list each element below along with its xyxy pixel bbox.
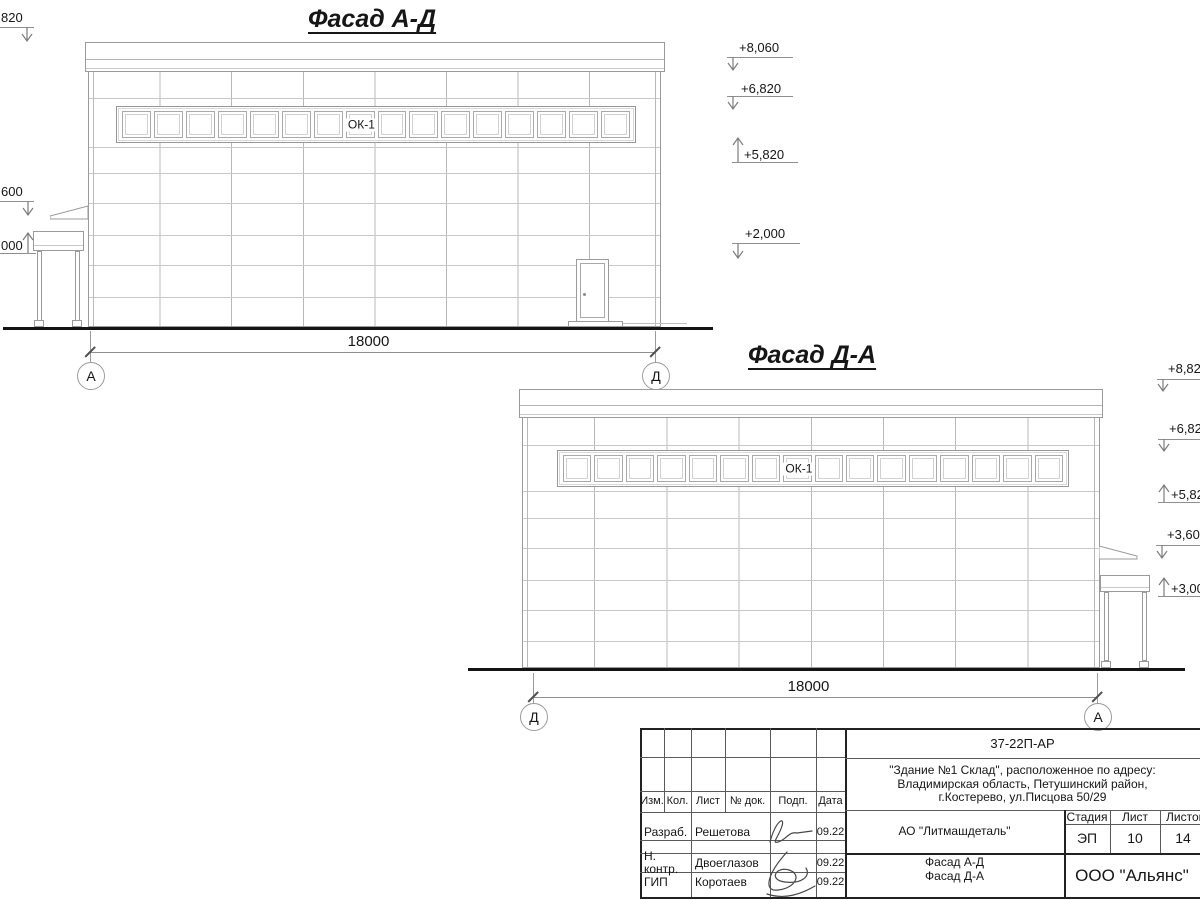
elevation-label: 000 bbox=[1, 239, 23, 253]
window-pane bbox=[626, 455, 654, 482]
window-pane bbox=[154, 111, 183, 138]
signature-icon bbox=[762, 812, 822, 848]
elevation-arrow-up-icon bbox=[732, 137, 744, 163]
elevation-label: +6,82 bbox=[1169, 422, 1200, 436]
window-pane bbox=[473, 111, 502, 138]
window-pane bbox=[505, 111, 534, 138]
ground-line bbox=[468, 668, 1185, 671]
drawing-sheet: Фасад А-Д ОК-1 bbox=[0, 0, 1200, 900]
door bbox=[576, 259, 609, 322]
window-pane bbox=[537, 111, 566, 138]
elevation-arrow-up-icon bbox=[1158, 484, 1170, 503]
window-band-tag: ОК-1 bbox=[782, 462, 815, 475]
window-pane bbox=[594, 455, 622, 482]
elevation-arrow-down-icon bbox=[21, 27, 33, 42]
window-pane bbox=[972, 455, 1000, 482]
client-name: АО "Литмашдеталь" bbox=[845, 810, 1064, 853]
porch-right-foot bbox=[1101, 661, 1111, 668]
company-name: ООО "Альянс" bbox=[1064, 853, 1200, 897]
dimension-line bbox=[533, 697, 1097, 698]
window-pane bbox=[569, 111, 598, 138]
window-pane bbox=[909, 455, 937, 482]
rev-col-data: Дата bbox=[816, 791, 845, 812]
facade-ad-title: Фасад А-Д bbox=[308, 5, 436, 34]
window-pane bbox=[1003, 455, 1031, 482]
facade-ad-parapet bbox=[85, 42, 665, 72]
window-pane bbox=[378, 111, 407, 138]
elevation-label: +5,82 bbox=[1171, 488, 1200, 502]
window-pane bbox=[940, 455, 968, 482]
dimension-value: 18000 bbox=[766, 678, 851, 695]
elevation-label: +6,820 bbox=[741, 82, 781, 96]
project-address: "Здание №1 Склад", расположенное по адре… bbox=[845, 764, 1200, 805]
role-label: Н. контр. bbox=[644, 856, 691, 870]
elevation-label: 820 bbox=[1, 11, 23, 25]
canopy-left bbox=[50, 205, 89, 222]
facade-da-parapet bbox=[519, 389, 1103, 418]
elevation-arrow-down-icon bbox=[1157, 379, 1169, 392]
window-pane bbox=[1035, 455, 1063, 482]
window-pane bbox=[409, 111, 438, 138]
window-band: ОК-1 bbox=[116, 106, 636, 143]
window-pane bbox=[752, 455, 780, 482]
rev-col-doc: № док. bbox=[725, 791, 770, 812]
ground-line bbox=[3, 327, 713, 330]
porch-right-roof bbox=[1100, 575, 1150, 592]
porch-left-roof bbox=[33, 231, 84, 251]
title-block: Изм. Кол. Лист № док. Подп. Дата Разраб.… bbox=[640, 728, 1200, 899]
sheet-label: Лист bbox=[1110, 810, 1160, 824]
rev-col-list: Лист bbox=[691, 791, 725, 812]
window-pane bbox=[122, 111, 151, 138]
sheets-label: Листов bbox=[1166, 810, 1200, 824]
stage-value: ЭП bbox=[1064, 824, 1110, 853]
porch-right-post bbox=[1104, 592, 1109, 661]
elevation-label: +5,820 bbox=[744, 148, 784, 162]
sheet-title: Фасад А-Д Фасад Д-А bbox=[845, 856, 1064, 883]
window-pane bbox=[815, 455, 843, 482]
window-band: ОК-1 bbox=[557, 450, 1069, 487]
elevation-arrow-down-icon bbox=[1156, 545, 1168, 559]
elevation-arrow-down-icon bbox=[727, 96, 739, 110]
porch-left-foot bbox=[72, 320, 82, 327]
role-name: Решетова bbox=[695, 825, 769, 839]
stage-label: Стадия bbox=[1064, 810, 1110, 824]
dimension-line bbox=[90, 352, 655, 353]
elevation-arrow-up-icon bbox=[22, 232, 34, 253]
facade-da-title: Фасад Д-А bbox=[748, 341, 876, 370]
axis-bubble-a: А bbox=[77, 362, 105, 390]
window-pane bbox=[186, 111, 215, 138]
window-pane bbox=[441, 111, 470, 138]
role-label: Разраб. bbox=[644, 825, 691, 839]
porch-left-foot bbox=[34, 320, 44, 327]
sheets-value: 14 bbox=[1160, 824, 1200, 853]
window-pane bbox=[846, 455, 874, 482]
window-pane bbox=[689, 455, 717, 482]
doc-number: 37-22П-АР bbox=[845, 730, 1200, 756]
dimension-value: 18000 bbox=[326, 333, 411, 350]
sheet-value: 10 bbox=[1110, 824, 1160, 853]
window-band-tag: ОК-1 bbox=[345, 118, 378, 131]
porch-left-post bbox=[37, 251, 42, 321]
rev-col-izm: Изм. bbox=[640, 791, 664, 812]
elevation-label: +3,00 bbox=[1171, 582, 1200, 596]
elevation-arrow-down-icon bbox=[727, 57, 739, 71]
elevation-arrow-up-icon bbox=[1158, 577, 1170, 597]
elevation-label: +2,000 bbox=[745, 227, 785, 241]
porch-right-post bbox=[1142, 592, 1147, 661]
porch-left-post bbox=[75, 251, 80, 321]
elevation-label: 600 bbox=[1, 185, 23, 199]
window-pane bbox=[720, 455, 748, 482]
window-pane bbox=[250, 111, 279, 138]
elevation-arrow-down-icon bbox=[732, 243, 744, 259]
window-pane bbox=[877, 455, 905, 482]
role-label: ГИП bbox=[644, 875, 691, 889]
elevation-arrow-down-icon bbox=[22, 201, 34, 216]
elevation-label: +8,82 bbox=[1168, 362, 1200, 376]
axis-bubble-d: Д bbox=[520, 703, 548, 731]
elevation-label: +8,060 bbox=[739, 41, 779, 55]
rev-col-podp: Подп. bbox=[770, 791, 816, 812]
axis-bubble-d: Д bbox=[642, 362, 670, 390]
elevation-label: +3,60 bbox=[1167, 528, 1200, 542]
window-pane bbox=[601, 111, 630, 138]
window-pane bbox=[282, 111, 311, 138]
door-handle-icon bbox=[583, 293, 586, 296]
signature-icon bbox=[755, 848, 827, 898]
canopy-right bbox=[1099, 545, 1138, 562]
rev-col-kol: Кол. bbox=[664, 791, 691, 812]
window-pane bbox=[314, 111, 343, 138]
window-pane bbox=[563, 455, 591, 482]
axis-bubble-a: А bbox=[1084, 703, 1112, 731]
window-pane bbox=[657, 455, 685, 482]
window-pane bbox=[218, 111, 247, 138]
elevation-arrow-down-icon bbox=[1158, 439, 1170, 452]
porch-right-foot bbox=[1139, 661, 1149, 668]
